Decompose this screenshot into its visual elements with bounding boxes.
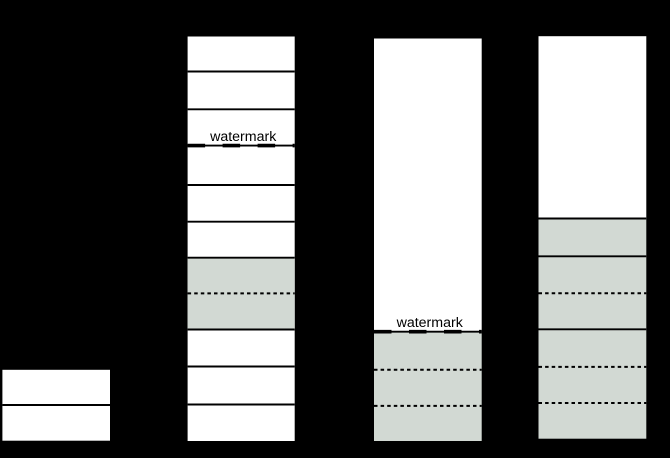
svg-text:watermark: watermark (209, 129, 277, 145)
svg-text:watermark: watermark (396, 315, 464, 331)
